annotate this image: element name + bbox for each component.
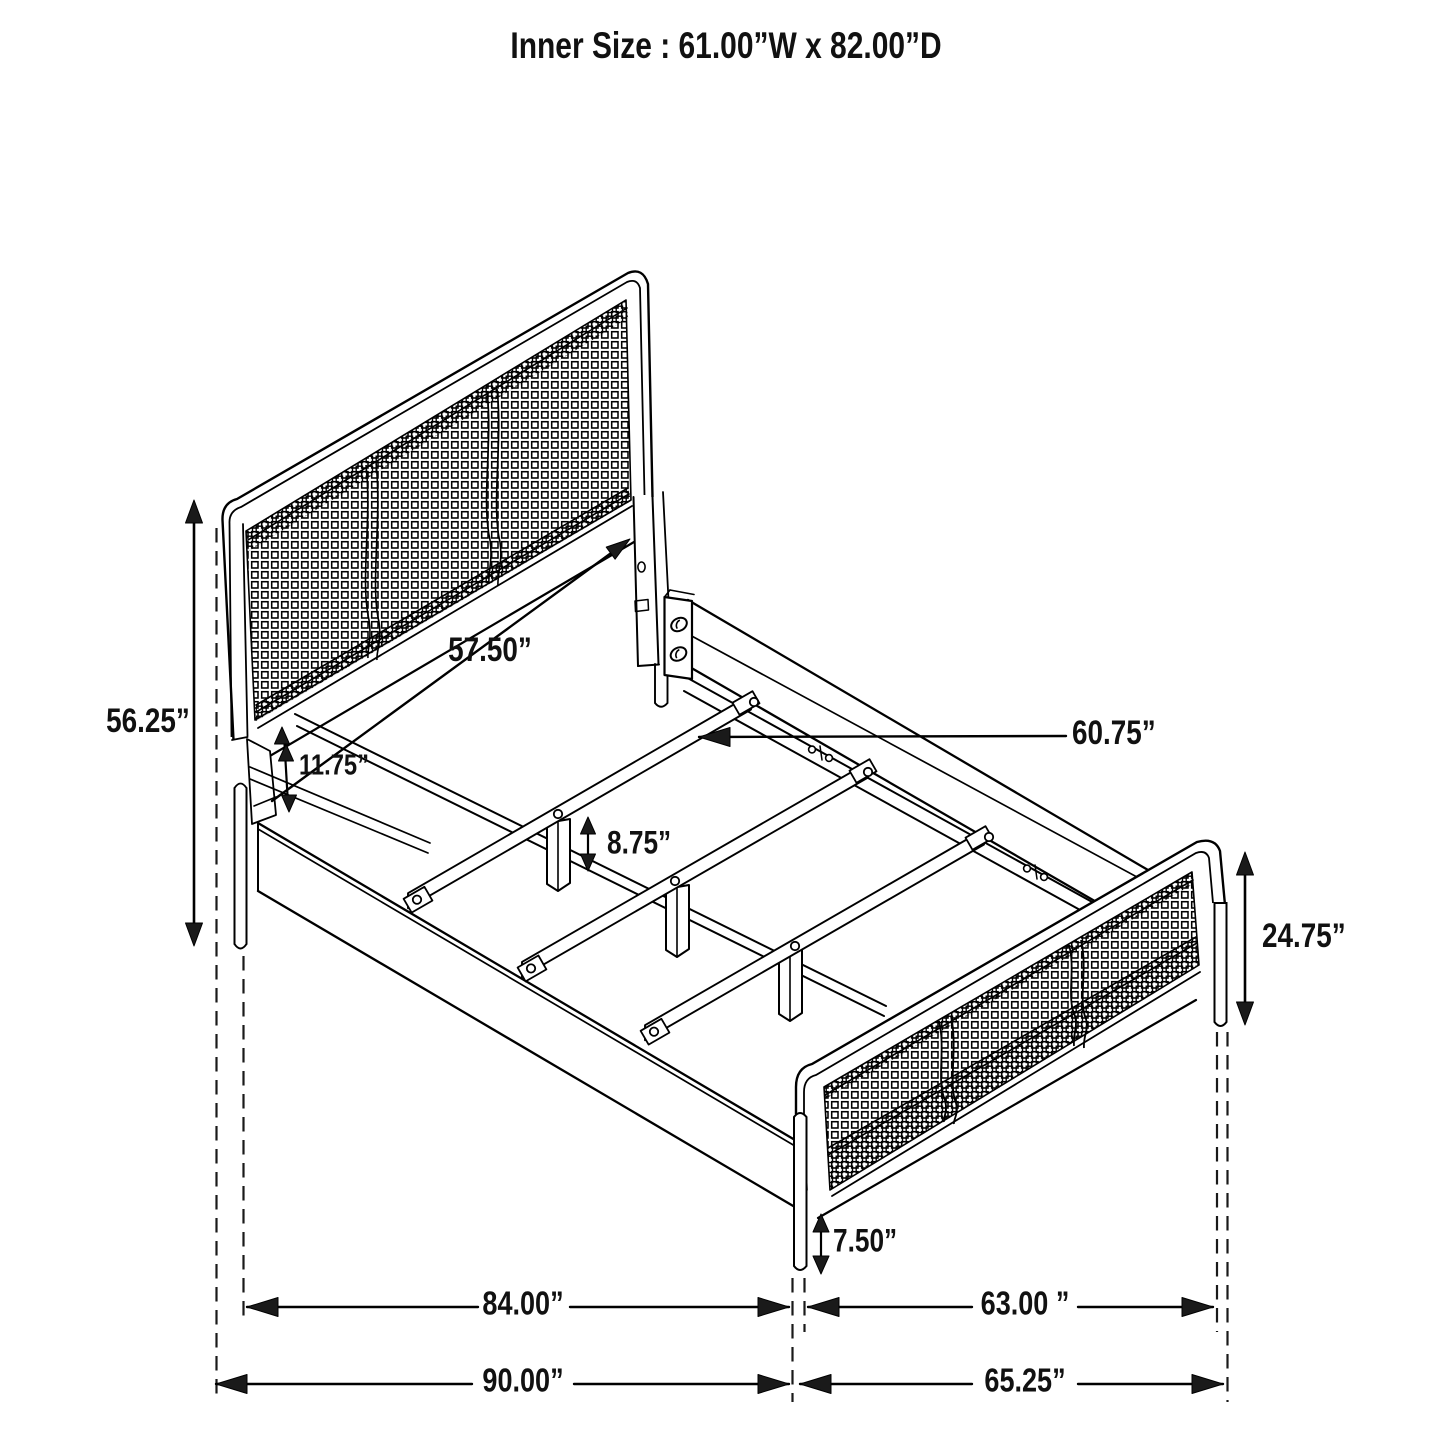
svg-text:57.50”: 57.50” [448, 630, 532, 668]
svg-text:56.25”: 56.25” [106, 701, 190, 739]
svg-text:60.75”: 60.75” [1072, 713, 1156, 751]
svg-text:8.75”: 8.75” [607, 826, 671, 861]
svg-text:84.00”: 84.00” [482, 1286, 563, 1322]
svg-text:24.75”: 24.75” [1262, 916, 1346, 954]
svg-text:Inner Size : 61.00”W x 82.00”D: Inner Size : 61.00”W x 82.00”D [510, 26, 941, 67]
svg-text:90.00”: 90.00” [482, 1363, 563, 1399]
svg-text:11.75”: 11.75” [299, 748, 369, 781]
svg-text:65.25”: 65.25” [984, 1363, 1065, 1399]
svg-text:63.00 ”: 63.00 ” [981, 1286, 1070, 1322]
svg-text:7.50”: 7.50” [833, 1224, 897, 1259]
